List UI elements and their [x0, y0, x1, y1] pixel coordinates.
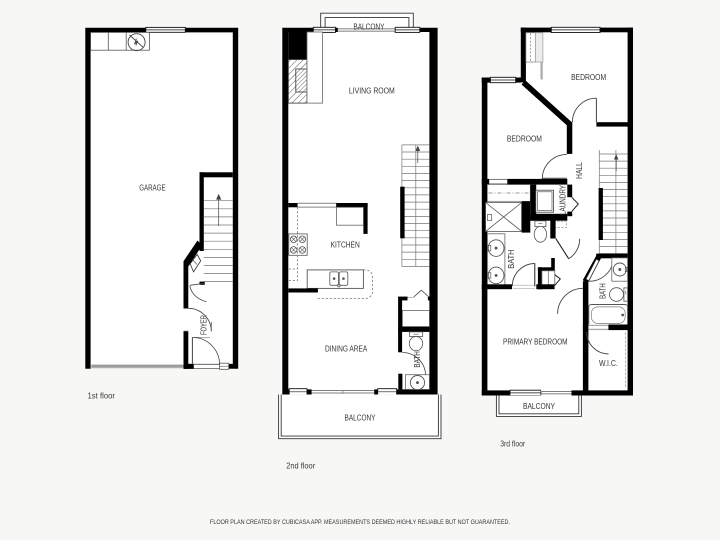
svg-text:BALCONY: BALCONY: [345, 413, 377, 422]
svg-text:KITCHEN: KITCHEN: [331, 240, 360, 249]
svg-text:HALL: HALL: [575, 162, 584, 179]
svg-text:BEDROOM: BEDROOM: [507, 134, 542, 143]
svg-text:BATH: BATH: [413, 351, 422, 368]
svg-text:LIVING ROOM: LIVING ROOM: [349, 86, 395, 95]
svg-text:W.I.C.: W.I.C.: [599, 359, 618, 368]
svg-text:3rd floor: 3rd floor: [500, 440, 525, 449]
svg-text:LAUNDRY: LAUNDRY: [559, 184, 568, 215]
svg-text:GARAGE: GARAGE: [139, 184, 165, 193]
svg-text:2nd floor: 2nd floor: [286, 462, 315, 471]
svg-text:FLOOR PLAN CREATED BY CUBICASA: FLOOR PLAN CREATED BY CUBICASA APP. MEAS…: [210, 520, 510, 526]
svg-text:BATH: BATH: [507, 249, 516, 268]
svg-text:BEDROOM: BEDROOM: [571, 73, 606, 82]
svg-text:DINING AREA: DINING AREA: [325, 345, 368, 354]
svg-text:BATH: BATH: [598, 283, 607, 299]
svg-text:BALCONY: BALCONY: [523, 402, 556, 411]
svg-text:FOYER: FOYER: [199, 315, 208, 335]
svg-text:PRIMARY BEDROOM: PRIMARY BEDROOM: [503, 338, 568, 347]
svg-text:1st floor: 1st floor: [88, 392, 116, 401]
svg-text:BALCONY: BALCONY: [353, 23, 385, 32]
